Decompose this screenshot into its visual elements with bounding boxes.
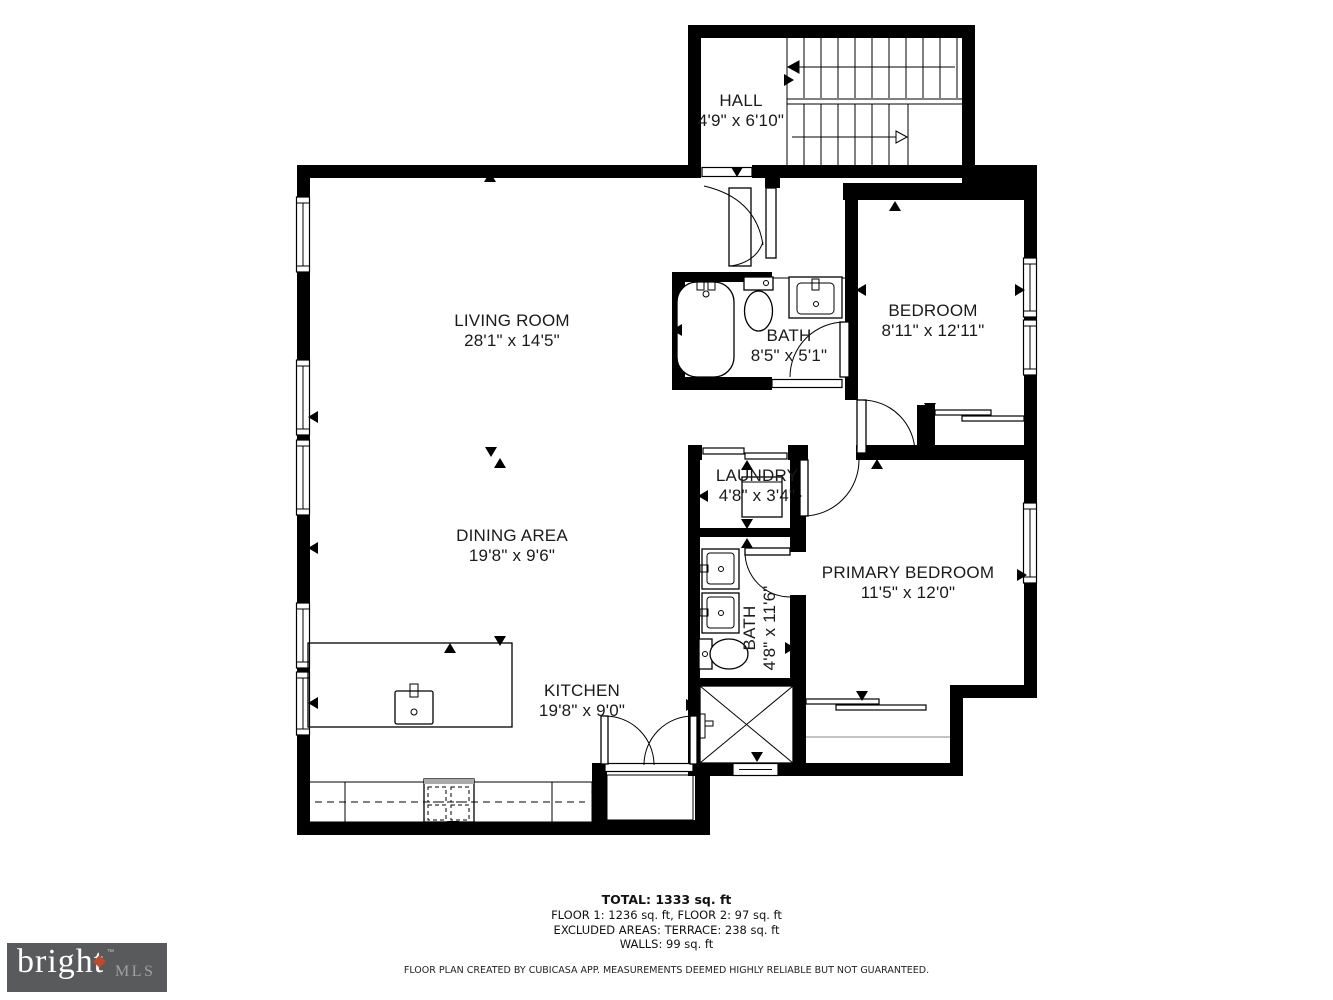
windows — [297, 197, 1037, 776]
vanity-sink — [700, 593, 739, 633]
toilet — [744, 277, 773, 331]
area-summary: TOTAL: 1333 sq. ft FLOOR 1: 1236 sq. ft,… — [0, 892, 1333, 952]
logo-brand-text: bright — [17, 943, 104, 981]
room-label-laundry: LAUNDRY 4'8" x 3'4" — [716, 466, 798, 506]
bedroom-closet-sliding-doors — [935, 410, 1024, 421]
room-name: KITCHEN — [539, 681, 625, 701]
shower — [699, 686, 793, 763]
room-name: HALL — [698, 91, 784, 111]
room-name: LIVING ROOM — [454, 311, 570, 331]
room-dims: 4'9" x 6'10" — [698, 111, 784, 131]
stove — [424, 779, 474, 822]
bright-mls-logo: bright ™ MLS — [7, 943, 167, 992]
bathtub — [677, 282, 734, 377]
window — [1024, 258, 1037, 317]
disclaimer-text: FLOOR PLAN CREATED BY CUBICASA APP. MEAS… — [0, 965, 1333, 976]
room-name: LAUNDRY — [716, 466, 798, 486]
logo-mls-text: MLS — [115, 963, 155, 981]
room-dims: 8'11" x 12'11" — [882, 321, 985, 341]
hall-closet-door — [765, 188, 845, 278]
room-dims: 19'8" x 9'0" — [539, 701, 625, 721]
entry-vestibule — [607, 775, 693, 820]
floorplan-page: { "plan": { "rooms": [ {"id":"hall","nam… — [0, 0, 1333, 1000]
room-label-hall: HALL 4'9" x 6'10" — [698, 91, 784, 131]
room-label-kitchen: KITCHEN 19'8" x 9'0" — [539, 681, 625, 721]
room-label-bedroom: BEDROOM 8'11" x 12'11" — [882, 301, 985, 341]
floor-areas: FLOOR 1: 1236 sq. ft, FLOOR 2: 97 sq. ft — [0, 908, 1333, 923]
room-name: BATH — [751, 326, 828, 346]
room-label-dining-area: DINING AREA 19'8" x 9'6" — [456, 526, 568, 566]
kitchen-french-doors — [601, 716, 697, 772]
window — [297, 197, 310, 272]
room-name: BATH — [740, 586, 760, 671]
room-label-bath-upper: BATH 8'5" x 5'1" — [751, 326, 828, 366]
window — [297, 440, 310, 515]
laundry-bifold-doors — [703, 448, 787, 459]
room-name: DINING AREA — [456, 526, 568, 546]
room-name: BEDROOM — [882, 301, 985, 321]
sink — [789, 277, 842, 318]
kitchen-counter — [308, 782, 592, 822]
window — [297, 360, 310, 435]
window — [1024, 503, 1037, 583]
window — [733, 764, 778, 776]
stairs — [787, 38, 962, 165]
room-dims: 4'8" x 3'4" — [716, 486, 798, 506]
primary-bedroom-door — [800, 460, 859, 516]
window — [1024, 320, 1037, 375]
excluded-areas: EXCLUDED AREAS: TERRACE: 238 sq. ft — [0, 923, 1333, 938]
room-label-living-room: LIVING ROOM 28'1" x 14'5" — [454, 311, 570, 351]
kitchen-island — [308, 643, 512, 727]
room-dims: 28'1" x 14'5" — [454, 331, 570, 351]
hall-door — [702, 168, 763, 267]
total-area: TOTAL: 1333 sq. ft — [0, 892, 1333, 908]
room-dims: 4'8" x 11'6" — [760, 586, 780, 671]
wall-areas: WALLS: 99 sq. ft — [0, 937, 1333, 952]
logo-trademark: ™ — [107, 949, 114, 956]
room-dims: 11'5" x 12'0" — [822, 583, 994, 603]
room-dims: 8'5" x 5'1" — [751, 346, 828, 366]
room-label-bath-lower: BATH 4'8" x 11'6" — [740, 586, 780, 671]
primary-closet-sliding-doors — [806, 699, 950, 737]
room-name: PRIMARY BEDROOM — [822, 563, 994, 583]
stairs-direction-arrow-down — [792, 131, 907, 143]
floorplan-canvas — [0, 0, 1333, 1000]
room-dims: 19'8" x 9'6" — [456, 546, 568, 566]
vanity-sink — [700, 549, 739, 589]
room-label-primary-bedroom: PRIMARY BEDROOM 11'5" x 12'0" — [822, 563, 994, 603]
doors — [601, 168, 1024, 772]
